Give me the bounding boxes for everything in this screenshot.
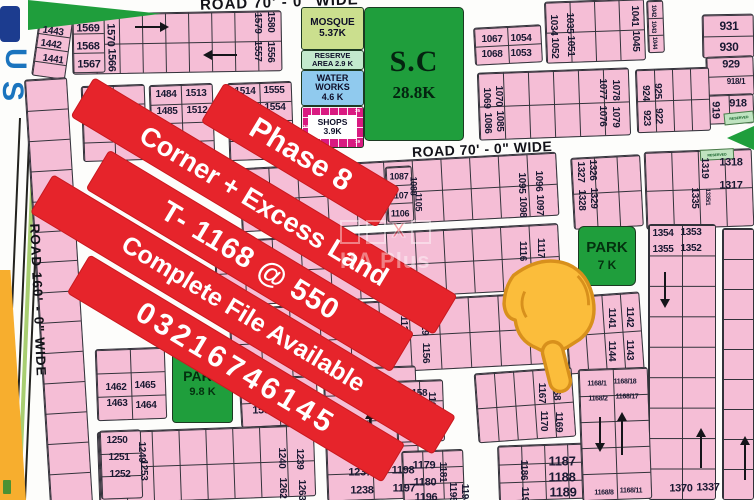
plot-number: 1042 (650, 5, 656, 17)
plot-number: 1194 (459, 484, 469, 500)
plot-number: 1170 (538, 411, 548, 432)
sc-label: S.C (390, 46, 439, 78)
mosque-size: 5.37K (319, 29, 346, 40)
plot-number: 1105 (414, 193, 423, 211)
plot-number: 1328 (576, 189, 586, 210)
plot-number: 925 (652, 83, 662, 99)
plot-number: 1142 (624, 307, 634, 328)
plot-number: 1096 (533, 170, 543, 191)
plot-number: 1556 (265, 41, 275, 62)
plot-map: U S MOSQUE 5.37K RESERVE AREA 2.9 K WATE… (0, 0, 754, 500)
plot-number: 1078 (610, 79, 620, 100)
edge-letter: U (0, 48, 30, 70)
plot-number: 1077 (597, 78, 607, 99)
direction-arrow-icon (205, 50, 237, 60)
plot-number: 1169 (553, 412, 563, 433)
plot-number: 1035 (564, 12, 574, 33)
edge-letter: S (0, 81, 27, 101)
shops-inner: SHOPS 3.9K (308, 115, 357, 139)
plot-number: 1181 (437, 462, 447, 483)
plot-number: 1317 (719, 181, 742, 192)
plot-number: 1168/2 (588, 396, 607, 403)
plot-number: 1076 (597, 105, 607, 126)
plot-number: 918/1 (727, 78, 746, 86)
plot-number: 1034 (548, 14, 558, 35)
plot-number: 1370 (669, 484, 692, 495)
direction-arrow-icon (617, 414, 627, 455)
boundary-green-mark (3, 480, 11, 494)
plot-number: 1238 (350, 486, 373, 497)
plot-number: 1329 (588, 187, 598, 208)
plot-number: 1188 (548, 471, 575, 484)
plot-number: 1143 (624, 340, 634, 361)
plot-number: 931 (719, 20, 738, 32)
plot-number: 1557 (252, 40, 262, 61)
direction-arrow-icon (135, 22, 167, 32)
plot-number: 1087 (390, 173, 409, 182)
plot-number: 1555 (263, 86, 284, 96)
plot-number: 1326 (587, 159, 597, 180)
plot-number: 1569 (76, 24, 99, 35)
plot-number: 1156 (420, 343, 430, 364)
plot-number: 1068 (481, 50, 502, 60)
plot-number: 1086 (482, 112, 492, 133)
plot-number: 929 (722, 60, 739, 71)
plot-number: 1335/1 (704, 189, 710, 206)
plot-number: 930 (719, 41, 738, 53)
plot-number: 1262 (277, 477, 287, 498)
park-size: 9.8 K (189, 387, 215, 399)
plot-number: 1095 (516, 172, 526, 193)
plot-number: 1570 (105, 23, 116, 46)
plot-number: 1318 (719, 158, 742, 169)
plot-number: 1085 (494, 110, 504, 131)
plot-number: 1252 (109, 470, 130, 480)
plot-number: 1195 (447, 482, 457, 500)
plot-number: 1353 (680, 228, 701, 238)
plot-number: 1079 (610, 106, 620, 127)
shops-size: 3.9K (324, 127, 342, 136)
water-size: 4.6 K (322, 93, 344, 102)
sc-size: 28.8K (393, 84, 436, 102)
plot-number: 1463 (106, 399, 127, 409)
plot-number: 1180 (414, 478, 437, 489)
plot-number: 1337 (696, 483, 719, 494)
plot-number: 1052 (549, 37, 559, 58)
plot-number: 1190 (519, 487, 529, 500)
plot-number: 919 (710, 101, 721, 118)
plot-number: 1189 (549, 486, 576, 499)
direction-arrow-icon (740, 438, 750, 480)
mosque-block: MOSQUE 5.37K (301, 7, 364, 50)
plot-number: 922 (653, 108, 663, 124)
plot-number: 1198 (392, 466, 415, 477)
plot-number: 1327 (575, 161, 585, 182)
plot-number: 1196 (415, 493, 438, 500)
plot-number: 1168/11 (620, 488, 642, 495)
plot-number: 1464 (135, 401, 156, 411)
shop-cell-number: 34 (303, 124, 308, 129)
plot-number: 1580 (265, 11, 275, 32)
plot-number: 1051 (565, 35, 575, 56)
plot-number: 1098 (517, 196, 527, 217)
plot-block (497, 442, 593, 500)
reserve-area-block: RESERVE AREA 2.9 K (301, 50, 364, 70)
green-arrow-right (727, 126, 754, 150)
plot-number: 1568 (76, 42, 99, 53)
plot-number: 1335 (689, 187, 699, 208)
plot-number: 1513 (185, 89, 206, 99)
park-label: PARK (586, 240, 627, 256)
plot-number: 924 (640, 85, 650, 101)
plot-number: 1179 (413, 461, 436, 472)
shop-cell-number: 35 (355, 108, 360, 113)
plot-number: 1579 (252, 12, 262, 33)
plot-number: 1106 (391, 210, 409, 219)
plot-number: 1045 (630, 30, 640, 51)
plot-number: 1070 (493, 85, 503, 106)
plot-number: 1054 (510, 34, 531, 44)
plot-number: 1239 (294, 448, 304, 469)
plot-number: 1168/8 (594, 490, 613, 497)
direction-arrow-icon (660, 272, 670, 306)
direction-arrow-icon (595, 417, 605, 450)
edge-letter-partial (0, 6, 20, 42)
plot-number: 1053 (510, 49, 531, 59)
plot-number: 918 (729, 99, 746, 110)
plot-number: 1462 (105, 383, 126, 393)
plot-number: 1069 (481, 87, 491, 108)
plot-number: 1168/17 (616, 394, 639, 401)
plot-number: 1465 (134, 381, 155, 391)
plot-number: 1186 (518, 460, 528, 481)
plot-number: 1197 (393, 484, 416, 495)
plot-number: 1240 (276, 447, 286, 468)
plot-number: 1041 (629, 5, 639, 26)
plot-number: 1352 (680, 244, 701, 254)
plot-number: 1187 (548, 455, 575, 468)
plot-number: 1566 (106, 48, 117, 71)
plot-number: 1263 (296, 479, 306, 500)
water-works-block: WATER WORKS 4.6 K (301, 70, 364, 106)
plot-number: 1250 (106, 436, 127, 446)
plot-number: 1319 (699, 157, 709, 178)
plot-number: 1354 (652, 229, 673, 239)
sc-block: S.C 28.8K (364, 7, 464, 141)
plot-number: 1253 (138, 459, 148, 480)
plot-number: 1484 (155, 90, 176, 100)
plot-number: 1567 (77, 60, 100, 71)
plot-number: 923 (641, 110, 651, 126)
plot-number: 1251 (108, 453, 129, 463)
direction-arrow-icon (696, 430, 706, 468)
plot-number: 1044 (651, 37, 657, 49)
mosque-label: MOSQUE (310, 18, 354, 29)
reserve-size: AREA 2.9 K (312, 60, 353, 68)
plot-number: 1067 (481, 35, 502, 45)
plot-number: 1097 (534, 194, 544, 215)
shop-cell-number: 19 (355, 139, 360, 144)
plot-number: 1355 (652, 245, 673, 255)
park-size: 7 K (598, 259, 617, 272)
plot-number: 1043 (650, 21, 656, 33)
